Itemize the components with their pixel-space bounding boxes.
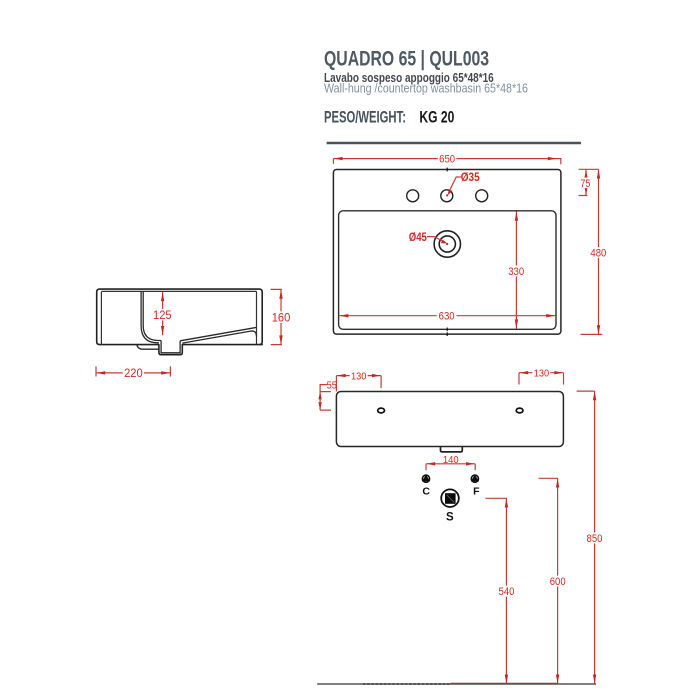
svg-text:650: 650 <box>439 154 455 166</box>
svg-text:KG 20: KG 20 <box>419 109 454 127</box>
svg-text:75: 75 <box>580 178 590 190</box>
svg-text:C: C <box>422 486 430 498</box>
svg-text:S: S <box>446 511 454 523</box>
svg-text:130: 130 <box>351 371 367 383</box>
svg-text:Ø45: Ø45 <box>409 231 427 244</box>
svg-text:55: 55 <box>327 380 338 392</box>
svg-text:600: 600 <box>550 577 566 589</box>
svg-text:480: 480 <box>590 248 606 260</box>
svg-text:540: 540 <box>499 587 515 599</box>
svg-text:160: 160 <box>272 312 291 324</box>
svg-text:F: F <box>473 486 480 498</box>
svg-text:Wall-hung /countertop washbasi: Wall-hung /countertop washbasin 65*48*16 <box>324 82 528 96</box>
svg-text:330: 330 <box>508 266 524 278</box>
svg-text:PESO/WEIGHT:: PESO/WEIGHT: <box>324 109 406 128</box>
svg-text:QUADRO 65 | QUL003: QUADRO 65 | QUL003 <box>324 46 489 70</box>
svg-text:850: 850 <box>587 533 603 545</box>
svg-text:Ø35: Ø35 <box>461 171 480 184</box>
svg-text:630: 630 <box>439 311 455 323</box>
svg-text:140: 140 <box>443 455 459 466</box>
svg-text:125: 125 <box>153 310 172 322</box>
svg-text:220: 220 <box>124 368 143 380</box>
svg-text:130: 130 <box>534 368 550 380</box>
